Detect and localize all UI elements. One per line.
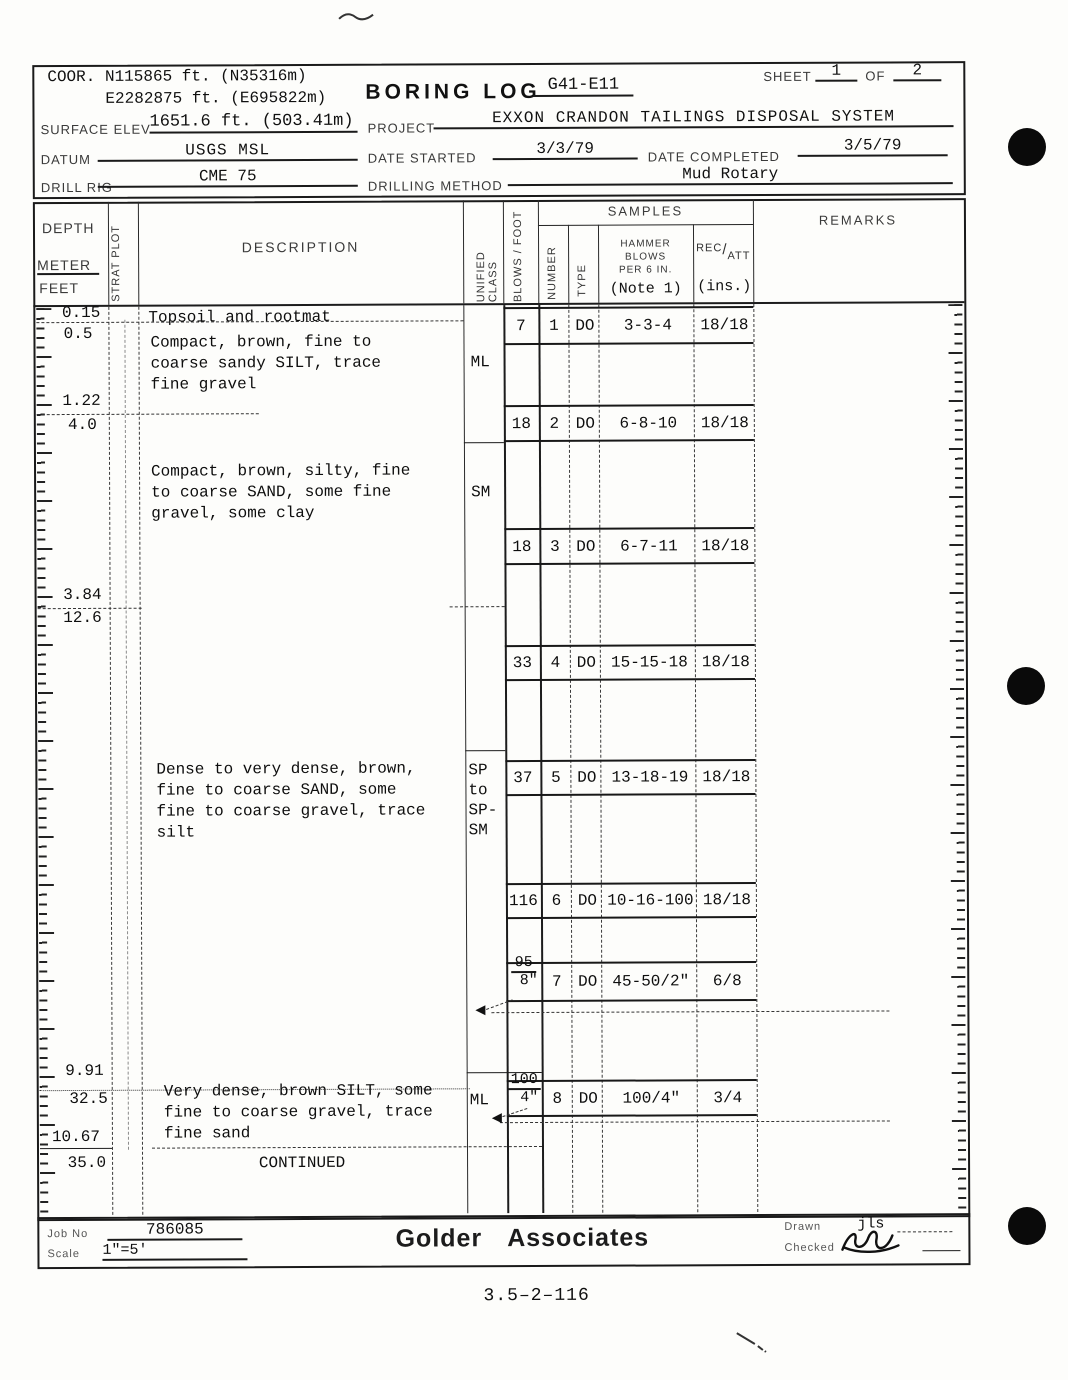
hammer-blows-value: 45-50/2"	[603, 972, 698, 990]
project-value: EXXON CRANDON TAILINGS DISPOSAL SYSTEM	[433, 107, 953, 129]
unified-class-value: SM	[471, 482, 490, 502]
blows-value: 18	[504, 414, 539, 432]
depth-feet: 12.6	[38, 609, 106, 627]
signature-scribble-icon	[840, 1227, 904, 1255]
sample-number: 4	[540, 654, 571, 672]
att-label: ATT	[727, 250, 750, 262]
unified-class-value: ML	[471, 352, 490, 372]
blows-fraction: 95 8"	[506, 955, 541, 989]
rec-att-units: (ins.)	[694, 278, 754, 295]
sheet-label: SHEET	[763, 69, 811, 84]
sheet-total: 2	[893, 61, 941, 81]
rec-att-value: 3/4	[699, 1089, 757, 1107]
depth-meters: 9.91	[40, 1062, 108, 1080]
hammer-blows-value: 13-18-19	[602, 768, 697, 786]
depth-meters: 3.84	[38, 586, 106, 604]
scan-artifact	[735, 1331, 769, 1358]
sample-type: DO	[571, 769, 602, 787]
scale-label: Scale	[47, 1248, 80, 1260]
datum-value: USGS MSL	[98, 141, 358, 162]
of-label: OF	[865, 68, 885, 83]
hammer-blows-value: 6-7-11	[601, 537, 696, 555]
boring-id: G41-E11	[533, 76, 633, 97]
rec-att-header: REC/ATT	[696, 241, 752, 258]
feet-header: FEET	[39, 280, 79, 296]
sample-row: 18 3 DO 6-7-11 18/18	[504, 527, 754, 565]
rec-att-value: 18/18	[698, 891, 756, 909]
blows-value: 116	[506, 892, 541, 910]
punch-hole	[1007, 667, 1045, 705]
blows-fraction-bottom: 8"	[510, 973, 538, 989]
date-completed-value: 3/5/79	[798, 136, 948, 157]
checked-underline	[922, 1250, 960, 1251]
rec-att-value: 18/18	[697, 768, 755, 786]
sample-type: DO	[572, 892, 603, 910]
description-header: DESCRIPTION	[138, 238, 463, 255]
stratum-description: Dense to very dense, brown, fine to coar…	[156, 758, 425, 843]
depth-meters: 0.15	[36, 304, 104, 322]
coor-north: N115865 ft. (N35316m)	[105, 67, 307, 86]
type-header: TYPE	[576, 245, 588, 297]
stratum-description: Compact, brown, silty, fine to coarse SA…	[151, 461, 411, 525]
blows-value: 37	[505, 769, 540, 787]
rec-att-value: 18/18	[697, 653, 755, 671]
sample-number: 7	[541, 973, 572, 991]
hammer-blows-value: 10-16-100	[603, 891, 698, 909]
blows-value: 7	[503, 317, 538, 335]
form-title: BORING LOG	[365, 80, 540, 105]
scale-value: 1"=5'	[102, 1241, 247, 1261]
sample-row: 95 8" 7 DO 45-50/2" 6/8	[506, 961, 756, 1002]
blows-value: 18	[504, 537, 539, 555]
sample-number: 5	[540, 769, 571, 787]
blows-value: 95 8"	[506, 975, 541, 989]
sample-type: DO	[573, 1089, 604, 1107]
strat-plot-header: STRAT PLOT	[110, 214, 122, 302]
blows-fraction-top: 100	[508, 1071, 541, 1089]
rec-att-value: 18/18	[696, 414, 754, 432]
company-name: Golder Associates	[342, 1223, 702, 1254]
class-cell-line	[464, 442, 504, 443]
sample-type: DO	[570, 537, 601, 555]
hammer-header-line1: HAMMER	[620, 238, 671, 249]
blows-value: 33	[505, 654, 540, 672]
sample-type: DO	[569, 317, 600, 335]
date-started-label: DATE STARTED	[368, 150, 477, 165]
date-completed-label: DATE COMPLETED	[648, 149, 780, 165]
sample-type: DO	[572, 973, 603, 991]
sample-row: 116 6 DO 10-16-100 18/18	[506, 882, 756, 919]
sample-row: 100 4" 8 DO 100/4" 3/4	[507, 1079, 757, 1117]
sample-number: 3	[539, 537, 570, 555]
punch-hole	[1008, 128, 1046, 166]
boring-log-sheet: COOR. N115865 ft. (N35316m) E2282875 ft.…	[0, 0, 1068, 1380]
coor-east: E2282875 ft. (E695822m)	[105, 89, 326, 108]
stratum-description: Very dense, brown SILT, some fine to coa…	[164, 1080, 433, 1144]
unified-class-header: UNIFIED CLASS	[475, 208, 499, 302]
continued-note: CONTINUED	[192, 1153, 412, 1175]
rec-att-value: 18/18	[696, 537, 754, 555]
hammer-blows-value: 6-8-10	[601, 414, 696, 432]
boundary-arrow-icon	[475, 1005, 485, 1015]
hammer-header-line3: PER 6 IN.	[619, 264, 673, 275]
depth-feet: 32.5	[44, 1090, 112, 1108]
checked-signature	[840, 1227, 904, 1260]
scan-artifact	[337, 9, 377, 27]
job-no-value: 786085	[107, 1220, 242, 1241]
punch-hole	[1008, 1207, 1046, 1245]
blows-value: 100 4"	[507, 1091, 542, 1105]
surface-elev-value: 1651.6 ft. (503.41m)	[149, 112, 357, 134]
scanned-form: COOR. N115865 ft. (N35316m) E2282875 ft.…	[0, 0, 1068, 1380]
unified-class-value: SP to SP- SM	[468, 760, 497, 840]
page-code: 3.5–2–116	[3, 1284, 1068, 1309]
number-header: NUMBER	[546, 238, 558, 300]
blows-fraction-top: 95	[512, 955, 536, 973]
depth-meters: 10.67	[36, 1128, 104, 1146]
depth-feet: 35.0	[42, 1154, 110, 1172]
rec-att-value: 18/18	[695, 316, 753, 334]
drilling-method-value: Mud Rotary	[508, 164, 953, 186]
sample-number: 1	[538, 317, 569, 335]
sample-number: 6	[541, 892, 572, 910]
sample-number: 2	[539, 414, 570, 432]
sample-row: 33 4 DO 15-15-18 18/18	[505, 644, 755, 681]
hammer-header: HAMMER BLOWS PER 6 IN.	[598, 237, 693, 276]
depth-header: DEPTH	[42, 220, 95, 236]
datum-label: DATUM	[41, 152, 91, 167]
sample-type: DO	[571, 654, 602, 672]
coor-label: COOR.	[47, 68, 95, 86]
blows-fraction-bottom: 4"	[510, 1089, 538, 1105]
date-started-value: 3/3/79	[493, 140, 638, 161]
stratum-description: Compact, brown, fine to coarse sandy SIL…	[150, 332, 381, 396]
depth-meters: 1.22	[37, 392, 105, 410]
sample-number: 8	[542, 1089, 573, 1107]
unified-class-value: ML	[470, 1090, 489, 1110]
sample-row: 37 5 DO 13-18-19 18/18	[505, 759, 755, 796]
rec-att-value: 6/8	[698, 972, 756, 990]
checked-label: Checked	[784, 1242, 834, 1254]
project-label: PROJECT	[368, 120, 436, 135]
samples-header: SAMPLES	[538, 203, 753, 226]
sample-row: 18 2 DO 6-8-10 18/18	[504, 404, 754, 442]
blows-foot-header: BLOWS / FOOT	[512, 208, 524, 302]
rec-label: REC	[696, 242, 722, 254]
drill-rig-value: CME 75	[98, 167, 358, 188]
job-no-label: Job No	[47, 1228, 88, 1240]
sheet-number: 1	[815, 62, 857, 82]
sample-type: DO	[570, 414, 601, 432]
class-cell-line	[465, 750, 505, 751]
hammer-header-line2: BLOWS	[625, 251, 666, 262]
blows-fraction: 100 4"	[507, 1071, 542, 1105]
sample-row: 7 1 DO 3-3-4 18/18	[503, 306, 753, 345]
remarks-header: REMARKS	[753, 212, 963, 228]
hammer-blows-value: 100/4"	[604, 1089, 699, 1107]
hammer-blows-value: 15-15-18	[602, 653, 697, 671]
drawn-label: Drawn	[784, 1221, 821, 1233]
stratum-description: Topsoil and rootmat	[148, 307, 331, 329]
drilling-method-label: DRILLING METHOD	[368, 178, 503, 194]
boundary-arrow-icon	[492, 1113, 502, 1123]
hammer-blows-value: 3-3-4	[600, 316, 695, 334]
depth-feet: 0.5	[28, 325, 96, 343]
coor-line1: COOR. N115865 ft. (N35316m)	[47, 67, 306, 86]
hammer-note: (Note 1)	[598, 280, 693, 297]
meter-header: METER	[37, 257, 99, 275]
depth-feet: 4.0	[33, 416, 101, 434]
surface-elev-label: SURFACE ELEV	[41, 122, 151, 137]
